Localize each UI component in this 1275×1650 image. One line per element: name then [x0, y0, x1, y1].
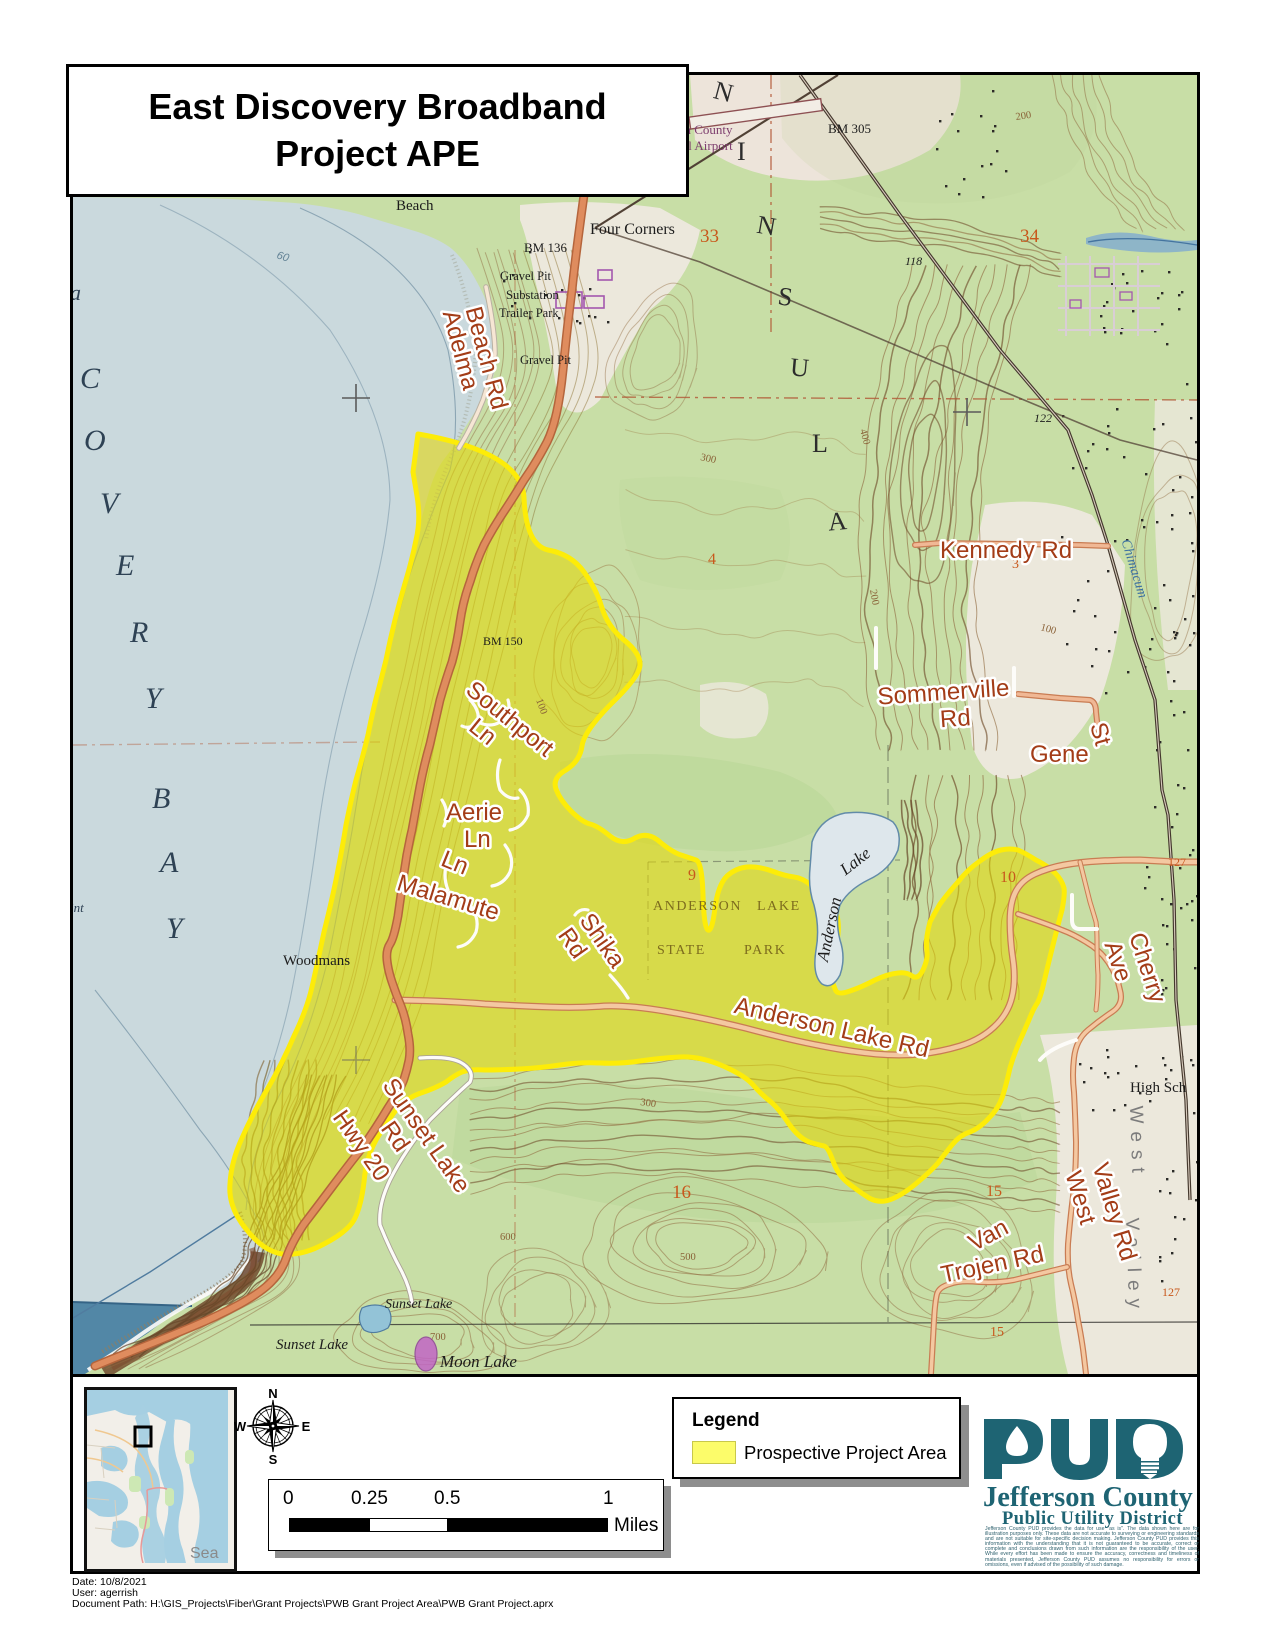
svg-text:S: S: [269, 1452, 278, 1466]
svg-text:Sea: Sea: [190, 1545, 219, 1562]
svg-text:W: W: [234, 1419, 247, 1434]
svg-text:N: N: [268, 1388, 277, 1401]
svg-text:E: E: [302, 1419, 311, 1434]
